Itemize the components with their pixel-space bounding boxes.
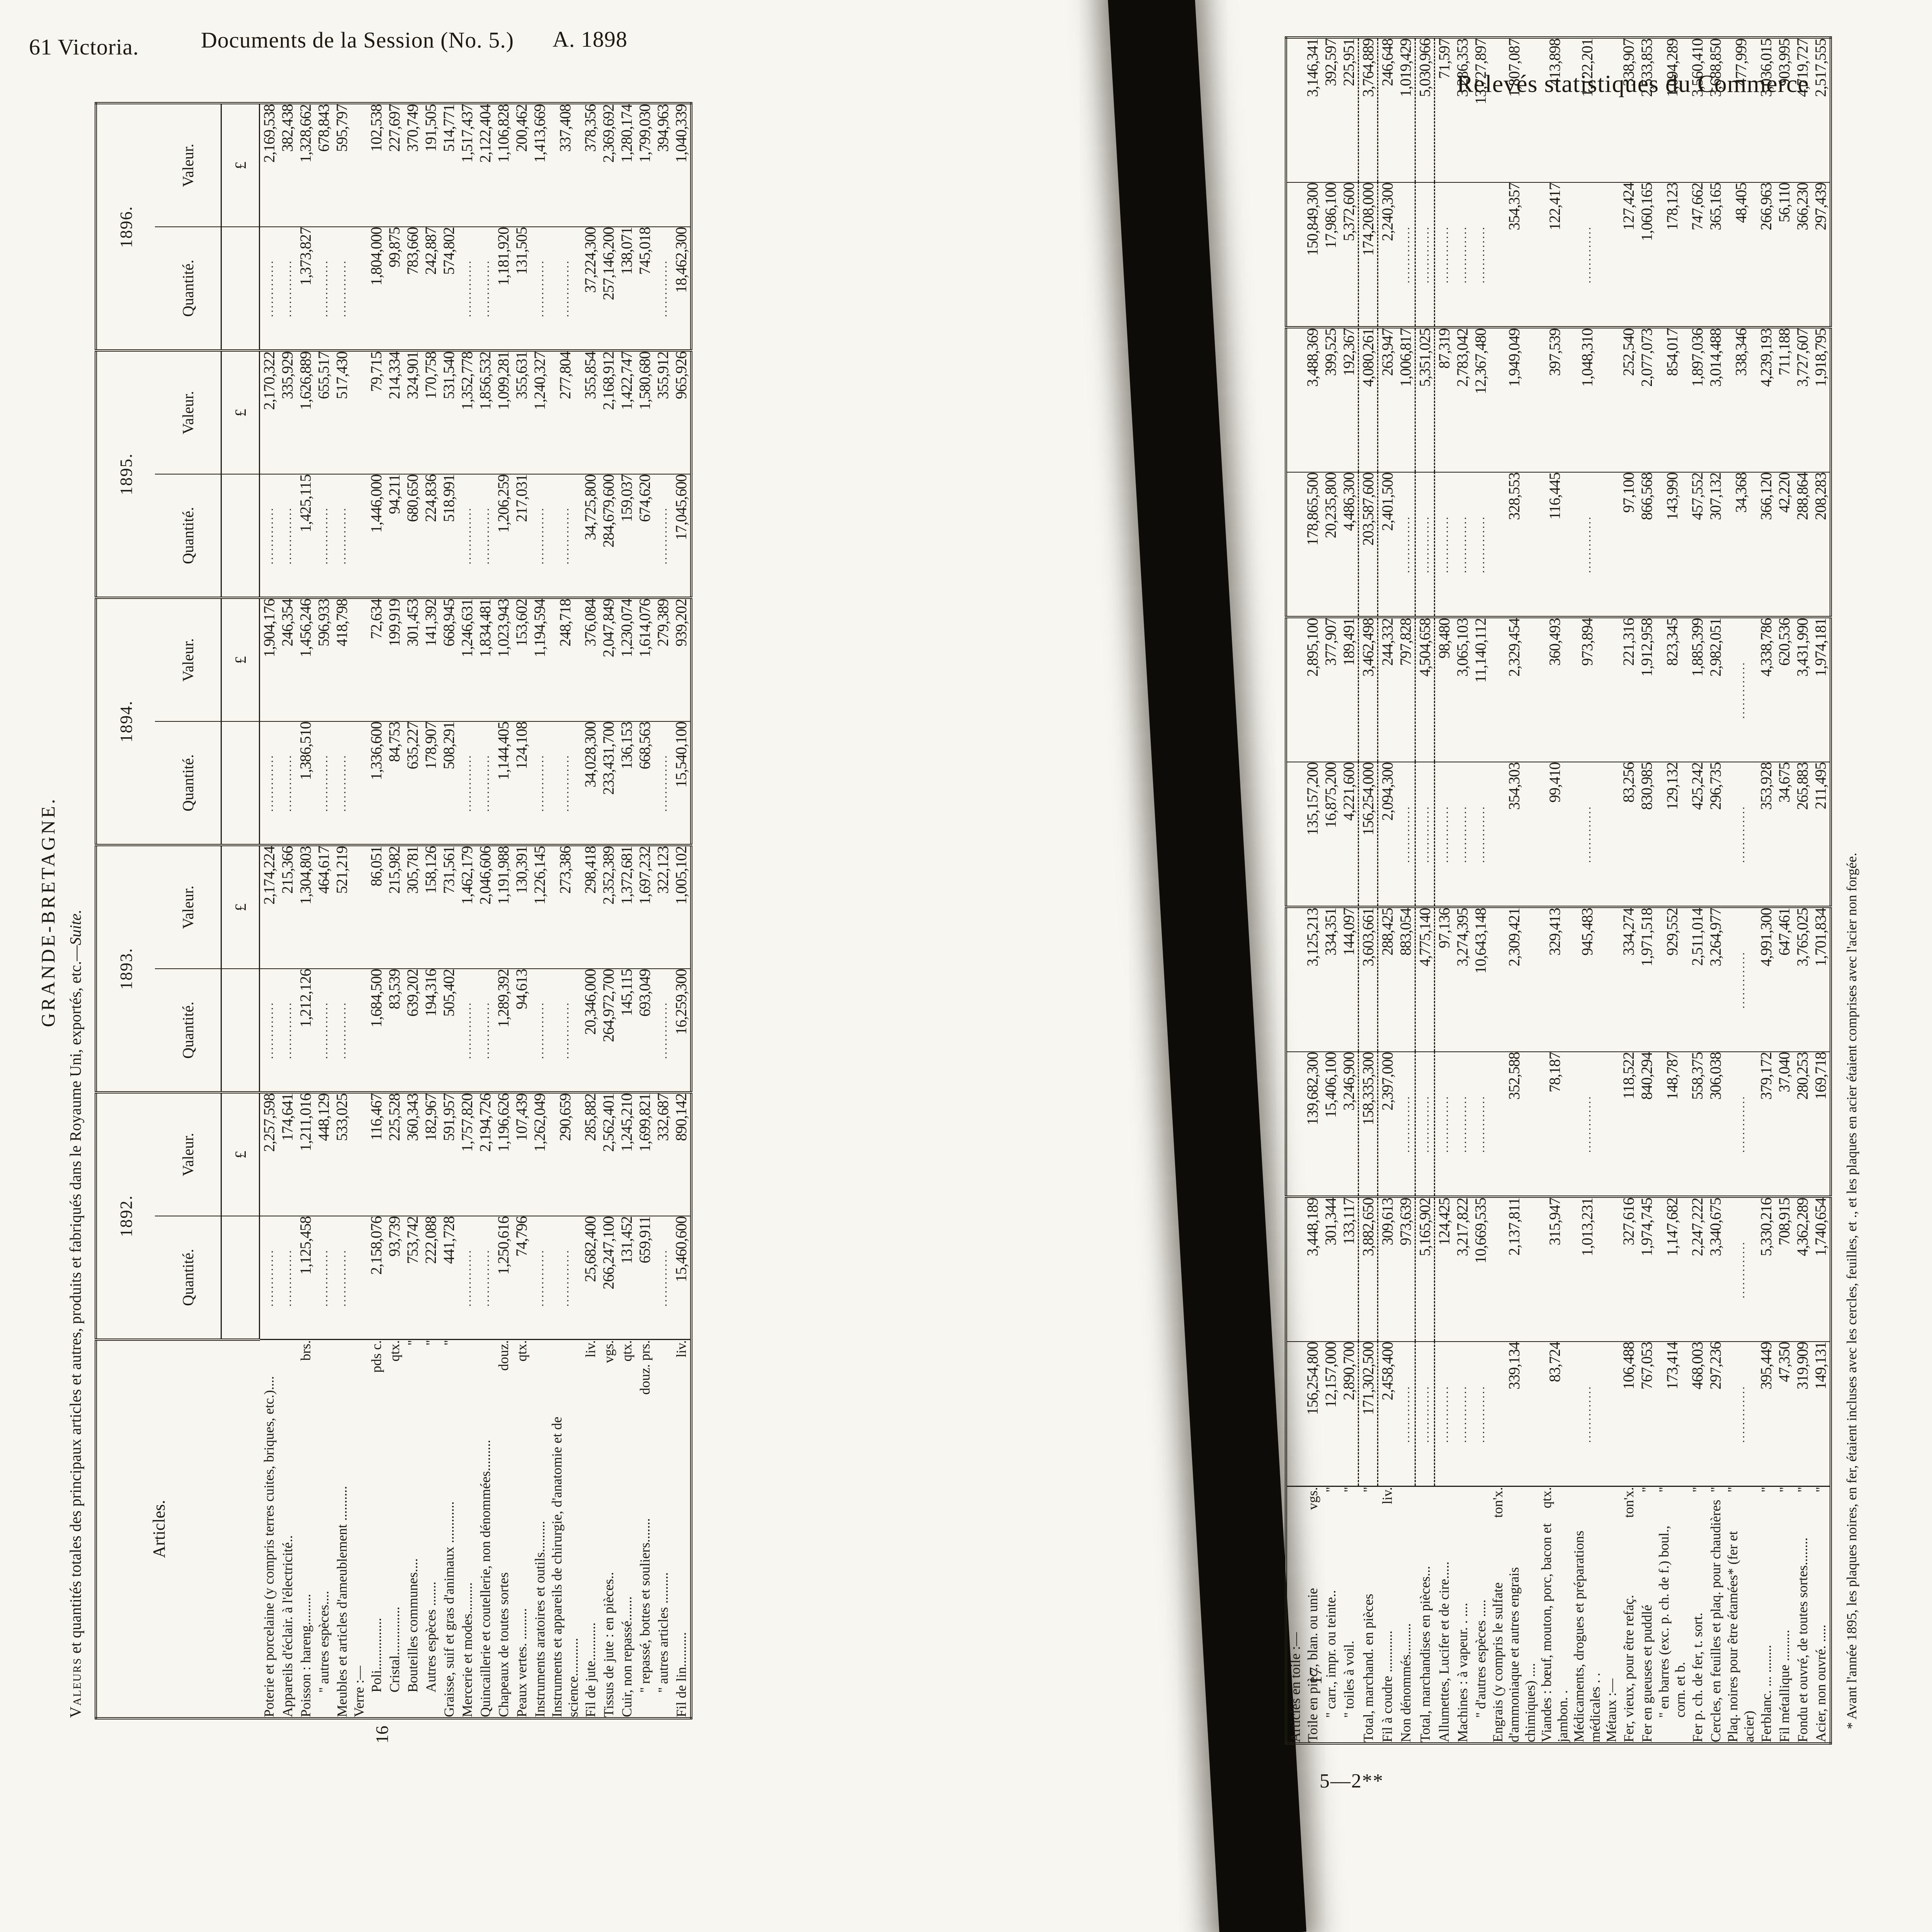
- row-label: Peaux vertes. .........: [514, 1608, 530, 1717]
- value-cell: 5,165,902: [1415, 1197, 1435, 1342]
- quantity-cell: 457,552: [1688, 472, 1706, 617]
- value-cell: 329,413: [1538, 907, 1571, 1052]
- row-label: Métaux :—: [1603, 1679, 1619, 1742]
- row-label-cell: Chapeaux de toutes sortesdouz.: [494, 1340, 512, 1718]
- quantity-cell: .............: [654, 227, 672, 350]
- quantity-cell: 106,488: [1619, 1342, 1638, 1486]
- quantity-cell: [351, 969, 367, 1092]
- quantity-cell: 99,875: [385, 227, 403, 350]
- value-cell: 4,719,727: [1793, 37, 1811, 182]
- quantity-cell: 131,452: [617, 1216, 636, 1340]
- value-cell: 591,957: [440, 1092, 458, 1216]
- quantity-cell: .............: [549, 227, 581, 350]
- signature-mark: 5—2**: [1320, 1770, 1384, 1793]
- value-cell: 517,430: [333, 350, 351, 474]
- value-cell: 2,194,726: [476, 1092, 494, 1216]
- row-unit: qtx.: [619, 1340, 635, 1366]
- row-label-cell: '' d'autres espèces .....: [1471, 1486, 1490, 1743]
- currency-symbol-pound: £: [221, 598, 260, 721]
- quantity-cell: 131,505: [512, 227, 531, 350]
- quantity-cell: 1,212,126: [296, 969, 315, 1092]
- quantity-cell: 745,018: [636, 227, 654, 350]
- value-cell: 3,036,015: [1757, 37, 1775, 182]
- value-cell: 263,947: [1378, 327, 1397, 472]
- quantity-cell: 425,242: [1688, 762, 1706, 907]
- value-cell: 355,631: [512, 350, 531, 474]
- value-cell: 3,146,341: [1303, 37, 1321, 182]
- quantity-cell: 99,410: [1538, 762, 1571, 907]
- currency-spacer: [221, 721, 260, 845]
- row-label-cell: Non dénommés.........: [1396, 1486, 1415, 1743]
- scanned-document-spread: { "colors":{"paper":"#f7f6f1","ink":"#1c…: [0, 0, 1932, 1833]
- value-cell: 1,196,626: [494, 1092, 512, 1216]
- row-label-cell: Articles en toile :—: [1286, 1486, 1303, 1743]
- quantity-cell: 747,662: [1688, 182, 1706, 327]
- quantity-cell: 156,254,800: [1303, 1342, 1321, 1486]
- table-row: Fil métallique .........''47,350708,9153…: [1775, 37, 1793, 1743]
- value-cell: 1,194,594: [531, 598, 549, 721]
- quantity-cell: 1,206,259: [494, 474, 512, 598]
- quantity-cell: 508,291: [440, 721, 458, 845]
- quantity-cell: 148,787: [1656, 1052, 1688, 1197]
- value-cell: 370,749: [403, 103, 422, 227]
- value-cell: 360,343: [403, 1092, 422, 1216]
- row-label: Fil à coudre ............: [1379, 1631, 1395, 1742]
- row-label-cell: Fer en gueuses et puddlé'': [1638, 1486, 1656, 1743]
- quantity-cell: .............: [278, 227, 296, 350]
- row-unit: douz.: [495, 1340, 512, 1375]
- value-cell: 1,701,834: [1811, 907, 1831, 1052]
- row-unit: qtx.: [514, 1340, 530, 1366]
- quantity-cell: 34,368: [1725, 472, 1757, 617]
- right-statistics-table: Articles en toile :—Toile en pièc., blan…: [1285, 36, 1832, 1745]
- value-cell: 191,505: [422, 103, 440, 227]
- quantity-cell: .............: [315, 227, 333, 350]
- quantity-cell: .............: [654, 721, 672, 845]
- value-cell: 335,929: [278, 350, 296, 474]
- value-cell: 521,219: [333, 845, 351, 969]
- table-row: '' toiles à voil.''2,890,700133,1173,246…: [1340, 37, 1359, 1743]
- quantity-cell: 94,613: [512, 969, 531, 1092]
- row-label-cell: Fil à coudre ............liv.: [1378, 1486, 1397, 1743]
- value-cell: 2,168,912: [599, 350, 617, 474]
- left-page-number: 16: [372, 1697, 395, 1743]
- value-cell: 252,540: [1619, 327, 1638, 472]
- quantity-cell: 353,928: [1757, 762, 1775, 907]
- value-cell: 273,386: [549, 845, 581, 969]
- value-cell: 595,797: [333, 103, 351, 227]
- value-cell: 1,372,681: [617, 845, 636, 969]
- row-label-cell: Médicaments, drogues et préparations méd…: [1571, 1486, 1603, 1743]
- value-cell: 3,448,189: [1303, 1197, 1321, 1342]
- subtitle-rest: et quantités totales des principaux arti…: [66, 945, 84, 1657]
- quantity-cell: .............: [1415, 1342, 1435, 1486]
- row-label-cell: Fondu et ouvré, de toutes sortes........…: [1793, 1486, 1811, 1743]
- right-rotated-table-block: Articles en toile :—Toile en pièc., blan…: [1285, 37, 1932, 1745]
- quantity-cell: 1,181,920: [494, 227, 512, 350]
- table-footnote: * Avant l'année 1895, les plaques noires…: [1844, 37, 1860, 1745]
- row-label-cell: Poterie et porcelaine (y compris terres …: [260, 1340, 279, 1718]
- value-cell: 1,122,201: [1571, 37, 1603, 182]
- row-label: Tissus de jute : en pièces..: [600, 1572, 617, 1717]
- table-row: Appareils d'éclair. à l'électricité.....…: [278, 103, 296, 1718]
- value-cell: 531,540: [440, 350, 458, 474]
- row-unit: liv.: [582, 1340, 599, 1362]
- row-unit: '': [1656, 1487, 1672, 1496]
- value-cell: [351, 1092, 367, 1216]
- quantity-cell: 280,253: [1793, 1052, 1811, 1197]
- quantity-cell: 365,165: [1706, 182, 1725, 327]
- row-unit: '': [1758, 1487, 1774, 1496]
- value-cell: 418,798: [333, 598, 351, 721]
- row-label: Total, marchand. en pièces: [1360, 1594, 1376, 1742]
- row-label-cell: Poisson : hareng.........brs.: [296, 1340, 315, 1718]
- row-label-cell: Cercles, en feuilles et plaq. pour chaud…: [1706, 1486, 1725, 1743]
- quantity-cell: 242,887: [422, 227, 440, 350]
- row-label-cell: Total, marchand. en pièces'': [1359, 1486, 1378, 1743]
- quantity-cell: 518,991: [440, 474, 458, 598]
- row-label-cell: Instruments aratoires et outils.........: [531, 1340, 549, 1718]
- quantity-cell: 266,963: [1757, 182, 1775, 327]
- value-cell: [351, 598, 367, 721]
- row-label-cell: '' en barres (exc. p. ch. de f.) boul., …: [1656, 1486, 1688, 1743]
- value-cell: 3,488,369: [1303, 327, 1321, 472]
- row-unit: pds c.: [368, 1340, 384, 1377]
- value-cell: 309,613: [1378, 1197, 1397, 1342]
- value-cell: 225,951: [1340, 37, 1359, 182]
- quantity-cell: .............: [458, 474, 476, 598]
- quantity-cell: .............: [1725, 762, 1757, 907]
- value-cell: 2,982,051: [1706, 617, 1725, 762]
- table-header: Articles.1892.1893.1894.1895.1896.Quanti…: [96, 103, 260, 1718]
- quantity-cell: 20,346,000: [581, 969, 599, 1092]
- value-cell: 214,334: [385, 350, 403, 474]
- table-row: Mercerie et modes......................1…: [458, 103, 476, 1718]
- value-cell: 4,504,658: [1415, 617, 1435, 762]
- row-label: '' en barres (exc. p. ch. de f.) boul., …: [1656, 1496, 1688, 1742]
- value-cell: 4,239,193: [1757, 327, 1775, 472]
- row-label: Allumettes, Lucifer et de cire.....: [1436, 1561, 1452, 1742]
- column-header-quantite: Quantité.: [155, 969, 221, 1092]
- value-cell: 397,539: [1538, 327, 1571, 472]
- quantity-cell: 693,049: [636, 969, 654, 1092]
- value-cell: [351, 350, 367, 474]
- row-label-cell: Bouteilles communes....'': [403, 1340, 422, 1718]
- quantity-cell: [351, 227, 367, 350]
- column-header-valeur: Valeur.: [155, 845, 221, 969]
- quantity-cell: 319,909: [1793, 1342, 1811, 1486]
- value-cell: 678,843: [315, 103, 333, 227]
- row-label-cell: Viandes : bœuf, mouton, porc, bacon et j…: [1538, 1486, 1571, 1743]
- row-label: Cuir, non repassé.......: [619, 1596, 635, 1717]
- value-cell: 337,408: [549, 103, 581, 227]
- value-cell: 3,727,607: [1793, 327, 1811, 472]
- value-cell: 1,226,145: [531, 845, 549, 969]
- row-label-cell: Engrais (y compris le sulfate d'ammoniaq…: [1490, 1486, 1538, 1743]
- row-label-cell: Fil de jute...........liv.: [581, 1340, 599, 1718]
- row-label: Cercles, en feuilles et plaq. pour chaud…: [1708, 1500, 1724, 1742]
- quantity-cell: 37,040: [1775, 1052, 1793, 1197]
- left-rotated-table-block: GRANDE-BRETAGNE. Valeurs et quantités to…: [37, 104, 1119, 1719]
- row-label: Fil de jute...........: [582, 1622, 599, 1717]
- value-cell: 315,947: [1538, 1197, 1571, 1342]
- value-cell: 3,431,990: [1793, 617, 1811, 762]
- row-label: Fondu et ouvré, de toutes sortes........: [1794, 1537, 1811, 1742]
- row-unit: liv.: [673, 1340, 689, 1362]
- value-cell: 1,918,795: [1811, 327, 1831, 472]
- table-row: Chapeaux de toutes sortesdouz.1,250,6161…: [494, 103, 512, 1718]
- value-cell: 2,170,322: [260, 350, 279, 474]
- row-label: '' toiles à voil.: [1341, 1641, 1357, 1742]
- quantity-cell: 2,890,700: [1340, 1342, 1359, 1486]
- quantity-cell: 84,753: [385, 721, 403, 845]
- row-label: Acier, non ouvré. .....: [1813, 1625, 1829, 1742]
- quantity-cell: 156,254,000: [1359, 762, 1378, 907]
- value-cell: 1,974,745: [1638, 1197, 1656, 1342]
- table-row: Poterie et porcelaine (y compris terres …: [260, 103, 279, 1718]
- quantity-cell: 56,110: [1775, 182, 1793, 327]
- value-cell: 883,054: [1396, 907, 1415, 1052]
- value-cell: 5,351,025: [1415, 327, 1435, 472]
- quantity-cell: .............: [1415, 472, 1435, 617]
- value-cell: 1,974,181: [1811, 617, 1831, 762]
- table-row: Fer p. ch. de fer, t. sort.''468,0032,24…: [1688, 37, 1706, 1743]
- column-header-year-1894: 1894.: [96, 598, 155, 845]
- quantity-cell: 366,120: [1757, 472, 1775, 617]
- value-cell: 3,274,395: [1453, 907, 1471, 1052]
- value-cell: 1,328,662: [296, 103, 315, 227]
- table-row: Fil à coudre ............liv.2,458,40030…: [1378, 37, 1397, 1743]
- quantity-cell: .............: [1571, 472, 1603, 617]
- value-cell: 4,362,289: [1793, 1197, 1811, 1342]
- value-cell: 153,602: [512, 598, 531, 721]
- value-cell: 192,367: [1340, 327, 1359, 472]
- quantity-cell: .............: [278, 721, 296, 845]
- row-label-cell: Acier, non ouvré. .....'': [1811, 1486, 1831, 1743]
- quantity-cell: [1603, 1342, 1619, 1486]
- value-cell: 477,999: [1725, 37, 1757, 182]
- value-cell: 965,926: [672, 350, 691, 474]
- value-cell: 2,369,692: [599, 103, 617, 227]
- quantity-cell: 47,350: [1775, 1342, 1793, 1486]
- row-label-cell: Fer, vieux, pour être refaç.ton'x.: [1619, 1486, 1638, 1743]
- value-cell: 2,533,853: [1638, 37, 1656, 182]
- value-cell: 514,771: [440, 103, 458, 227]
- table-row: Cercles, en feuilles et plaq. pour chaud…: [1706, 37, 1725, 1743]
- table-row: Fil de jute...........liv.25,682,400285,…: [581, 103, 599, 1718]
- quantity-cell: .............: [1396, 1052, 1415, 1197]
- value-cell: 10,669,535: [1471, 1197, 1490, 1342]
- row-label: Articles en toile :—: [1287, 1632, 1303, 1742]
- currency-spacer: [221, 969, 260, 1092]
- quantity-cell: 17,986,100: [1321, 182, 1340, 327]
- value-cell: 1,699,821: [636, 1092, 654, 1216]
- currency-spacer: [221, 227, 260, 350]
- quantity-cell: .............: [531, 721, 549, 845]
- value-cell: 3,286,353: [1453, 37, 1471, 182]
- value-cell: 2,046,606: [476, 845, 494, 969]
- value-cell: 301,453: [403, 598, 422, 721]
- value-cell: 1,262,049: [531, 1092, 549, 1216]
- quantity-cell: 1,060,165: [1638, 182, 1656, 327]
- row-label: Engrais (y compris le sulfate d'ammoniaq…: [1490, 1522, 1538, 1742]
- value-cell: 338,346: [1725, 327, 1757, 472]
- row-label: Poisson : hareng.........: [298, 1594, 314, 1717]
- row-label-cell: Fil de lin..........liv.: [672, 1340, 691, 1718]
- value-cell: 12,367,480: [1471, 327, 1490, 472]
- quantity-cell: [1603, 182, 1619, 327]
- left-statistics-table: Articles.1892.1893.1894.1895.1896.Quanti…: [95, 102, 692, 1719]
- quantity-cell: .............: [260, 474, 279, 598]
- quantity-cell: 379,172: [1757, 1052, 1775, 1197]
- value-cell: 596,933: [315, 598, 333, 721]
- value-cell: 3,764,889: [1359, 37, 1378, 182]
- quantity-cell: [1603, 1052, 1619, 1197]
- section-heading-row: Verre :—: [351, 103, 367, 1718]
- row-unit: liv.: [1379, 1487, 1395, 1509]
- value-cell: 13,727,897: [1471, 37, 1490, 182]
- value-cell: 322,123: [654, 845, 672, 969]
- value-cell: 97,136: [1435, 907, 1454, 1052]
- row-label: Bouteilles communes....: [405, 1558, 421, 1717]
- quantity-cell: .............: [1471, 1342, 1490, 1486]
- quantity-cell: .............: [1396, 1342, 1415, 1486]
- quantity-cell: [351, 1216, 367, 1340]
- value-cell: 2,309,421: [1490, 907, 1538, 1052]
- row-label: '' autres articles .........: [655, 1572, 671, 1717]
- quantity-cell: 753,742: [403, 1216, 422, 1340]
- table-row: Machines : à vapeur. . .................…: [1453, 37, 1471, 1743]
- value-cell: 2,122,404: [476, 103, 494, 227]
- value-cell: 3,014,488: [1706, 327, 1725, 472]
- value-cell: 378,356: [581, 103, 599, 227]
- quantity-cell: 136,153: [617, 721, 636, 845]
- column-header-quantite: Quantité.: [155, 474, 221, 598]
- value-cell: 973,894: [1571, 617, 1603, 762]
- quantity-cell: .............: [333, 227, 351, 350]
- table-row: Tissus de jute : en pièces..vgs.266,247,…: [599, 103, 617, 1718]
- quantity-cell: .............: [549, 969, 581, 1092]
- value-cell: 285,882: [581, 1092, 599, 1216]
- value-cell: 279,389: [654, 598, 672, 721]
- row-unit: '': [1639, 1487, 1655, 1496]
- value-cell: 1,211,016: [296, 1092, 315, 1216]
- table-row: Fer en gueuses et puddlé''767,0531,974,7…: [1638, 37, 1656, 1743]
- quantity-cell: .............: [476, 721, 494, 845]
- value-cell: 199,919: [385, 598, 403, 721]
- value-cell: 3,603,661: [1359, 907, 1378, 1052]
- row-label-cell: Verre :—: [351, 1340, 367, 1718]
- table-row: Allumettes, Lucifer et de cire..........…: [1435, 37, 1454, 1743]
- quantity-cell: 233,431,700: [599, 721, 617, 845]
- quantity-cell: 3,246,900: [1340, 1052, 1359, 1197]
- quantity-cell: 18,462,300: [672, 227, 691, 350]
- value-cell: 3,560,410: [1688, 37, 1706, 182]
- value-cell: 225,528: [385, 1092, 403, 1216]
- quantity-cell: .............: [549, 721, 581, 845]
- row-label-cell: Total, marchandises en pièces...: [1415, 1486, 1435, 1743]
- value-cell: 71,597: [1435, 37, 1454, 182]
- quantity-cell: 2,397,000: [1378, 1052, 1397, 1197]
- row-label-cell: Graisse, suif et gras d'animaux ........…: [440, 1340, 458, 1718]
- value-cell: 1,517,437: [458, 103, 476, 227]
- row-label-cell: Meubles et articles d'ameublement ......…: [333, 1340, 351, 1718]
- value-cell: 1,856,532: [476, 350, 494, 474]
- currency-spacer: [221, 1216, 260, 1340]
- quantity-cell: 1,336,600: [367, 721, 385, 845]
- quantity-cell: .............: [1435, 472, 1454, 617]
- quantity-cell: 297,236: [1706, 1342, 1725, 1486]
- value-cell: 399,525: [1321, 327, 1340, 472]
- value-cell: 2,895,100: [1303, 617, 1321, 762]
- quantity-cell: 468,003: [1688, 1342, 1706, 1486]
- quantity-cell: 265,883: [1793, 762, 1811, 907]
- quantity-cell: [351, 721, 367, 845]
- row-label-cell: Cuir, non repassé.......qtx.: [617, 1340, 636, 1718]
- row-label: Fil métallique .........: [1776, 1630, 1793, 1742]
- table-row: Poli...............pds c.2,158,076116,46…: [367, 103, 385, 1718]
- quantity-cell: 639,202: [403, 969, 422, 1092]
- quantity-cell: 17,045,600: [672, 474, 691, 598]
- quantity-cell: 264,972,700: [599, 969, 617, 1092]
- row-unit: brs.: [298, 1340, 314, 1365]
- value-cell: 3,340,675: [1706, 1197, 1725, 1342]
- value-cell: 79,715: [367, 350, 385, 474]
- quantity-cell: 297,439: [1811, 182, 1831, 327]
- row-unit: qtx.: [1538, 1487, 1554, 1512]
- row-label-cell: Fil métallique .........'': [1775, 1486, 1793, 1743]
- value-cell: 3,765,025: [1793, 907, 1811, 1052]
- left-running-head-title: Documents de la Session (No. 5.): [201, 27, 514, 53]
- value-cell: 4,338,786: [1757, 617, 1775, 762]
- row-label-cell: '' toiles à voil.'': [1340, 1486, 1359, 1743]
- row-unit: '': [441, 1340, 457, 1349]
- value-cell: 107,439: [512, 1092, 531, 1216]
- quantity-cell: 143,990: [1656, 472, 1688, 617]
- value-cell: 854,017: [1656, 327, 1688, 472]
- quantity-cell: 149,131: [1811, 1342, 1831, 1486]
- value-cell: 3,264,977: [1706, 907, 1725, 1052]
- quantity-cell: .............: [654, 474, 672, 598]
- table-row: Graisse, suif et gras d'animaux ........…: [440, 103, 458, 1718]
- quantity-cell: .............: [476, 227, 494, 350]
- value-cell: 301,344: [1321, 1197, 1340, 1342]
- value-cell: [351, 845, 367, 969]
- value-cell: 334,351: [1321, 907, 1340, 1052]
- quantity-cell: .............: [1571, 1342, 1603, 1486]
- quantity-cell: 12,157,000: [1321, 1342, 1340, 1486]
- row-label: Chapeaux de toutes sortes: [495, 1572, 512, 1717]
- column-header-year-1892: 1892.: [96, 1092, 155, 1340]
- value-cell: 130,391: [512, 845, 531, 969]
- value-cell: 215,982: [385, 845, 403, 969]
- row-unit: douz. prs.: [637, 1340, 653, 1399]
- row-label: '' d'autres espèces .....: [1473, 1600, 1489, 1742]
- quantity-cell: 122,417: [1538, 182, 1571, 327]
- value-cell: 620,536: [1775, 617, 1793, 762]
- row-unit: '': [1360, 1487, 1376, 1496]
- quantity-cell: 352,588: [1490, 1052, 1538, 1197]
- quantity-cell: .............: [1415, 182, 1435, 327]
- quantity-cell: 174,208,000: [1359, 182, 1378, 327]
- quantity-cell: 97,100: [1619, 472, 1638, 617]
- value-cell: 1,352,778: [458, 350, 476, 474]
- quantity-cell: [1603, 472, 1619, 617]
- quantity-cell: .............: [1435, 762, 1454, 907]
- row-label: Instruments aratoires et outils.........: [532, 1521, 548, 1717]
- row-label-cell: Cristal..............qtx.: [385, 1340, 403, 1718]
- quantity-cell: 118,522: [1619, 1052, 1638, 1197]
